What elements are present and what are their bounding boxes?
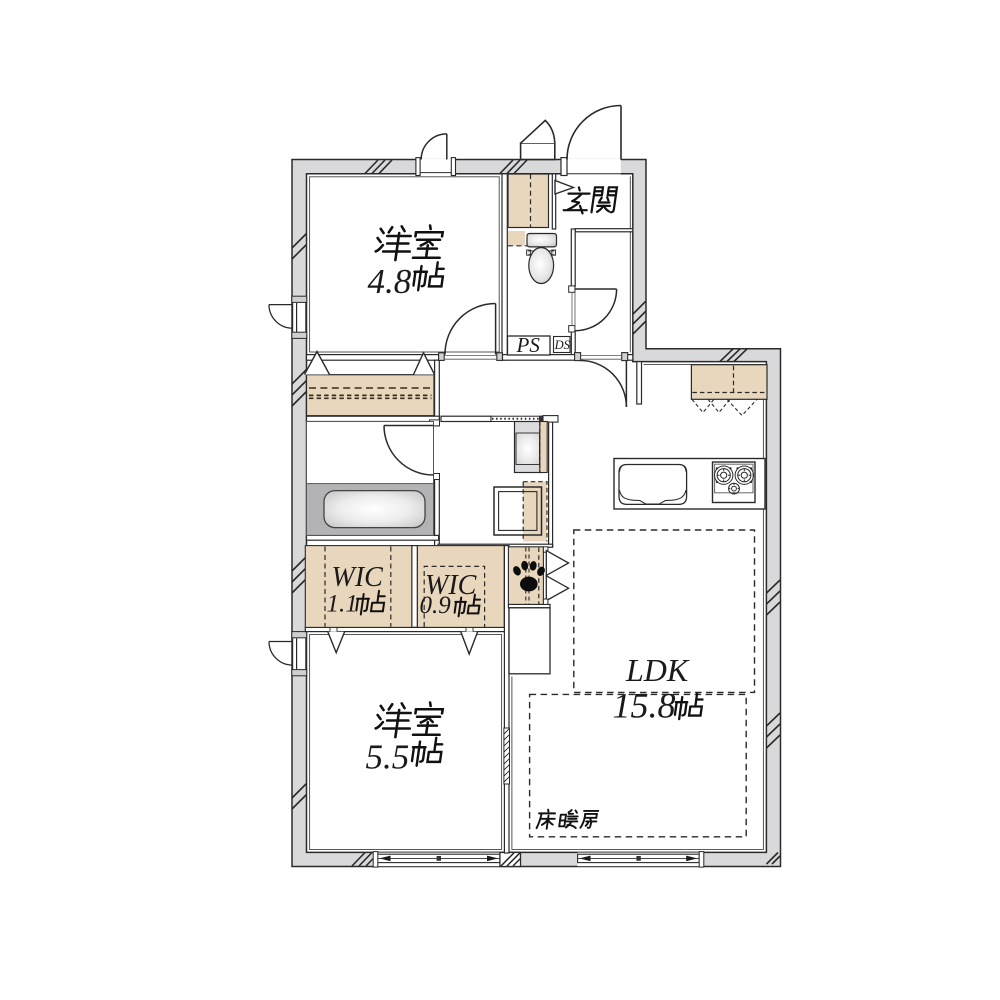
svg-text:15.8: 15.8 xyxy=(613,686,676,726)
svg-text:PS: PS xyxy=(516,333,541,357)
svg-text:WIC: WIC xyxy=(332,562,384,593)
svg-text:LDK: LDK xyxy=(625,652,690,688)
svg-text:DS: DS xyxy=(554,338,571,352)
svg-text:5.5: 5.5 xyxy=(366,738,410,777)
svg-text:0.9: 0.9 xyxy=(420,592,452,619)
svg-text:4.8: 4.8 xyxy=(368,262,412,301)
svg-text:1.1: 1.1 xyxy=(327,591,358,618)
